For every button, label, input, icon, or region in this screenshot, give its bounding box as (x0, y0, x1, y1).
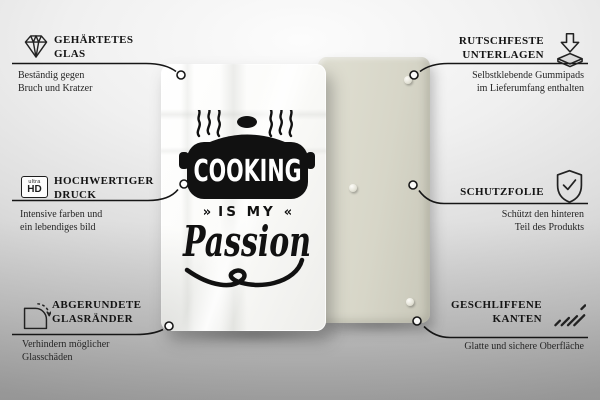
feature-desc: Beständig gegen Bruch und Kratzer (18, 69, 92, 95)
feature-desc: Glatte und sichere Oberfläche (464, 340, 584, 353)
passion-word: Passion (182, 217, 311, 266)
feature-desc: Verhindern möglicher Glasschäden (22, 338, 109, 364)
cooking-passion-print: COOKING » IS MY « Passion (171, 110, 316, 315)
hatch-icon (550, 298, 586, 334)
feature-rounded-glass-edges: ABGERUNDETE GLASRÄNDER Verhindern möglic… (14, 296, 174, 366)
cooking-word: COOKING (194, 154, 302, 189)
feature-title: HOCHWERTIGER DRUCK (54, 174, 154, 202)
feature-title: GESCHLIFFENE KANTEN (451, 298, 542, 326)
feature-tempered-glass: GEHÄRTETES GLAS Beständig gegen Bruch un… (14, 30, 174, 92)
shield-check-icon (555, 169, 584, 208)
feature-polished-edges: GESCHLIFFENE KANTEN Glatte und sichere O… (410, 296, 586, 366)
ultra-hd-icon: ultra HD (21, 176, 48, 198)
feature-desc: Schützt den hinteren Teil des Produkts (502, 208, 584, 234)
feature-hd-print: ultra HD HOCHWERTIGER DRUCK Intensive fa… (14, 168, 174, 232)
feature-anti-slip-pads: RUTSCHFESTE UNTERLAGEN Selbstklebende Gu… (410, 30, 586, 96)
feature-desc: Intensive farben und ein lebendiges bild (20, 208, 102, 234)
rubber-pad (349, 184, 357, 192)
glass-board-front: COOKING » IS MY « Passion (161, 64, 326, 331)
feature-title: ABGERUNDETE GLASRÄNDER (52, 298, 141, 326)
feature-title: RUTSCHFESTE UNTERLAGEN (459, 34, 544, 62)
feature-desc: Selbstklebende Gummipads im Lieferumfang… (472, 69, 584, 95)
feature-title: SCHUTZFOLIE (460, 185, 544, 199)
rounded-corner-icon (20, 302, 51, 338)
feature-protective-film: SCHUTZFOLIE Schützt den hinteren Teil de… (410, 168, 586, 234)
feature-title: GEHÄRTETES GLAS (54, 33, 133, 61)
diamond-icon (21, 33, 51, 65)
